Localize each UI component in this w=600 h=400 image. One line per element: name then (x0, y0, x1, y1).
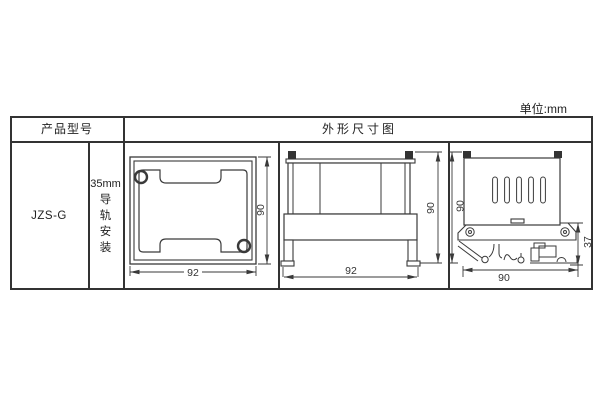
product-model-cell: JZS-G (10, 141, 88, 290)
side-view-drawing: 92 90 (278, 142, 448, 291)
din-clip-profile (458, 241, 577, 263)
rail-width-dimension: 90 (498, 272, 510, 284)
side-socket-base (284, 214, 417, 240)
mounting-char-4: 装 (100, 242, 112, 254)
header-outline-dimensions-label: 外形尺寸图 (319, 120, 397, 137)
mounting-char-3: 安 (100, 226, 112, 238)
side-width-dimension: 92 (345, 265, 357, 277)
rail-clip-right (554, 151, 562, 158)
header-product-model: 产品型号 (10, 116, 123, 141)
unit-note: 单位:mm (520, 100, 567, 117)
dimension-sheet: 单位:mm 产品型号 外形尺寸图 JZS-G 35mm 导 轨 安 装 (0, 0, 600, 400)
rail-height-dimension: 90 (455, 200, 467, 212)
front-width-dimension: 92 (187, 267, 199, 279)
mounting-char-1: 导 (100, 194, 112, 206)
rail-latch-slot (511, 219, 524, 223)
mounting-char-2: 轨 (100, 210, 112, 222)
side-clip-right (405, 151, 413, 159)
rail-clip-left (463, 151, 471, 158)
front-view-drawing: 92 90 (123, 142, 278, 291)
side-height-dimension: 90 (425, 202, 437, 214)
side-clip-left (288, 151, 296, 159)
header-outline-dimensions: 外形尺寸图 (123, 116, 593, 141)
din-rail-view-drawing: 90 37 90 (448, 142, 593, 291)
side-upper-body (288, 163, 410, 214)
product-model-value: JZS-G (31, 210, 67, 222)
mounting-size: 35mm (90, 178, 121, 190)
header-product-model-label: 产品型号 (40, 120, 93, 137)
front-height-dimension: 90 (255, 204, 267, 216)
rail-clip-height-dimension: 37 (582, 236, 593, 248)
mounting-type-cell: 35mm 导 轨 安 装 (88, 141, 123, 290)
